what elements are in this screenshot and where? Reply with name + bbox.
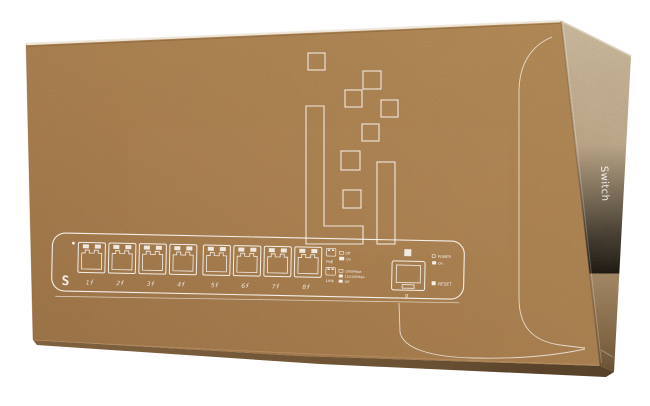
port-label: 2 xyxy=(116,280,120,287)
power-state: On xyxy=(438,262,443,266)
link-legend-row: 1000Mbps xyxy=(345,269,362,273)
led-swatch xyxy=(339,274,343,277)
sfp-label: 9 xyxy=(405,294,408,300)
power-led-swatch xyxy=(432,261,436,264)
sfp-led xyxy=(404,249,411,256)
port-label: 8 xyxy=(302,284,306,291)
link-legend-row: 10/100Mbps xyxy=(345,275,365,279)
cardboard-box-photo: S 1 2 3 4 5 6 7 8 xyxy=(0,0,650,406)
port-label: 3 xyxy=(147,281,151,288)
port-label: 1 xyxy=(86,279,90,286)
link-legend-title: Link xyxy=(326,278,335,283)
power-label: POWER xyxy=(438,255,452,259)
side-panel-product-name: Switch xyxy=(598,166,610,202)
poe-legend-row: On xyxy=(346,258,351,262)
product-photo-scene: S 1 2 3 4 5 6 7 8 xyxy=(0,0,650,406)
port-label: 4 xyxy=(177,281,181,288)
reset-label: RESET xyxy=(438,281,452,286)
reset-button-swatch xyxy=(432,281,436,285)
led-swatch xyxy=(339,280,343,283)
port-label: 6 xyxy=(241,283,245,290)
port-label: 5 xyxy=(211,282,215,289)
poe-legend-row: Off xyxy=(345,251,351,255)
port-label: 7 xyxy=(272,283,276,290)
brand-logo: S xyxy=(61,274,69,289)
led-swatch-on xyxy=(339,257,344,261)
poe-legend-title: PoE xyxy=(326,259,334,264)
